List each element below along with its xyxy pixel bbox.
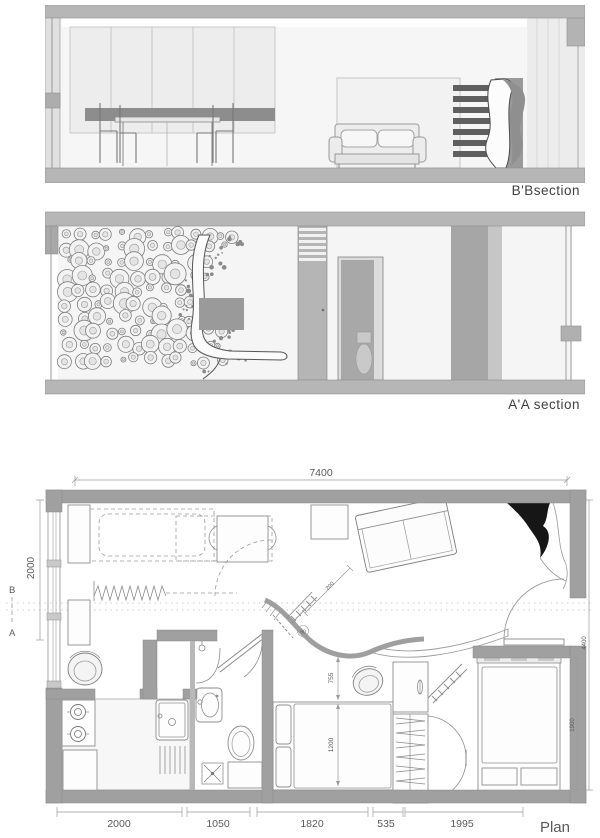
vanity-cabinet (393, 662, 428, 712)
washbasin (196, 688, 222, 722)
wall-bath-partition (190, 641, 195, 790)
wall-bath-right (262, 630, 273, 803)
wall-bottom (46, 790, 586, 803)
stove (62, 700, 95, 746)
section-markers: B A (9, 585, 16, 639)
office-chair-left (68, 651, 102, 685)
wall-right-top (570, 490, 586, 598)
aa-toilet-tank (357, 332, 371, 343)
plan-drawing: 90 200 755 1200 (0, 450, 600, 838)
corner-swoosh (506, 498, 567, 589)
aa-top-chord (45, 212, 585, 226)
fridge (63, 750, 97, 792)
bb-left-wall (45, 18, 60, 168)
aa-section-drawing (45, 210, 585, 395)
wall-hall (143, 640, 157, 699)
aa-doorway (338, 257, 383, 380)
bathroom (196, 634, 264, 788)
dim-clearance: 755 (328, 657, 340, 700)
toilet (228, 726, 262, 788)
desk-chair-center (348, 662, 387, 700)
bb-sofa (329, 124, 426, 168)
dim-top-label: 7400 (309, 467, 333, 479)
spring-symbol (94, 581, 237, 601)
entry-door (504, 579, 564, 645)
dim-1200-label: 1200 (328, 737, 335, 752)
wall-top (46, 490, 586, 503)
bathroom-door (218, 634, 264, 677)
aa-monitor (199, 298, 244, 330)
kitchen (62, 699, 190, 792)
right-bed (477, 655, 561, 793)
bb-top-chord (45, 5, 585, 18)
bb-ceiling-strip (62, 18, 567, 27)
aa-toilet-bowl (356, 344, 372, 374)
architectural-sheet: B'Bsection (0, 0, 600, 838)
bb-right-panel (527, 18, 585, 168)
window-left (47, 512, 61, 688)
dim-bottom-1820: 1820 (300, 818, 324, 830)
kitchen-sink (156, 700, 188, 740)
plan-sofa (355, 497, 457, 573)
work-desk (176, 516, 276, 596)
dim-top: 7400 (72, 467, 570, 486)
aa-bottom-chord (45, 380, 585, 394)
wall-bedroom-top (473, 646, 570, 658)
dim-bottom-1995: 1995 (450, 818, 474, 830)
angle-label: 90 (300, 630, 306, 636)
marker-a: A (9, 628, 16, 639)
aa-section-label: A'A section (420, 397, 580, 412)
aa-section-svg (45, 210, 585, 395)
dim-bottom-1050: 1050 (206, 818, 230, 830)
loft-ladder-center (273, 592, 317, 638)
bb-section-label: B'Bsection (420, 183, 580, 198)
dim-bottom-535: 535 (377, 818, 395, 830)
diag-dim-label: 200 (325, 581, 336, 592)
dim-right-inner-label: 1900 (570, 718, 576, 732)
side-table (311, 505, 348, 539)
ribbon-partition (262, 600, 508, 657)
wardrobe (393, 714, 466, 803)
murphy-bed (68, 505, 214, 645)
wall-left-top (46, 490, 62, 512)
wall-bath-top (157, 630, 217, 641)
dim-left: 2000 (26, 500, 44, 640)
dim-bottom-chain: 2000 1050 1820 535 1995 (57, 807, 523, 830)
dim-755-label: 755 (328, 672, 335, 683)
bifold-door-upper (428, 716, 466, 758)
bb-bottom-chord (45, 168, 585, 183)
dim-bottom-2000: 2000 (107, 818, 131, 830)
plan-svg: 90 200 755 1200 (0, 450, 600, 838)
diagonal-dim: 200 (302, 565, 353, 616)
floor-drain (202, 763, 223, 784)
bb-section-drawing (45, 5, 585, 183)
plan-label: Plan (540, 819, 570, 836)
dim-left-label: 2000 (26, 556, 37, 579)
marker-b: B (9, 585, 15, 596)
desk-chair-left (209, 526, 217, 550)
shower (196, 641, 220, 683)
louver-door (298, 226, 327, 380)
dim-right-outer-label: 4400 (582, 636, 588, 650)
loft-ladder-right (428, 664, 467, 703)
bb-section-svg (45, 5, 585, 183)
wall-kitchen-1 (46, 689, 95, 699)
wall-left-bottom (46, 688, 62, 803)
